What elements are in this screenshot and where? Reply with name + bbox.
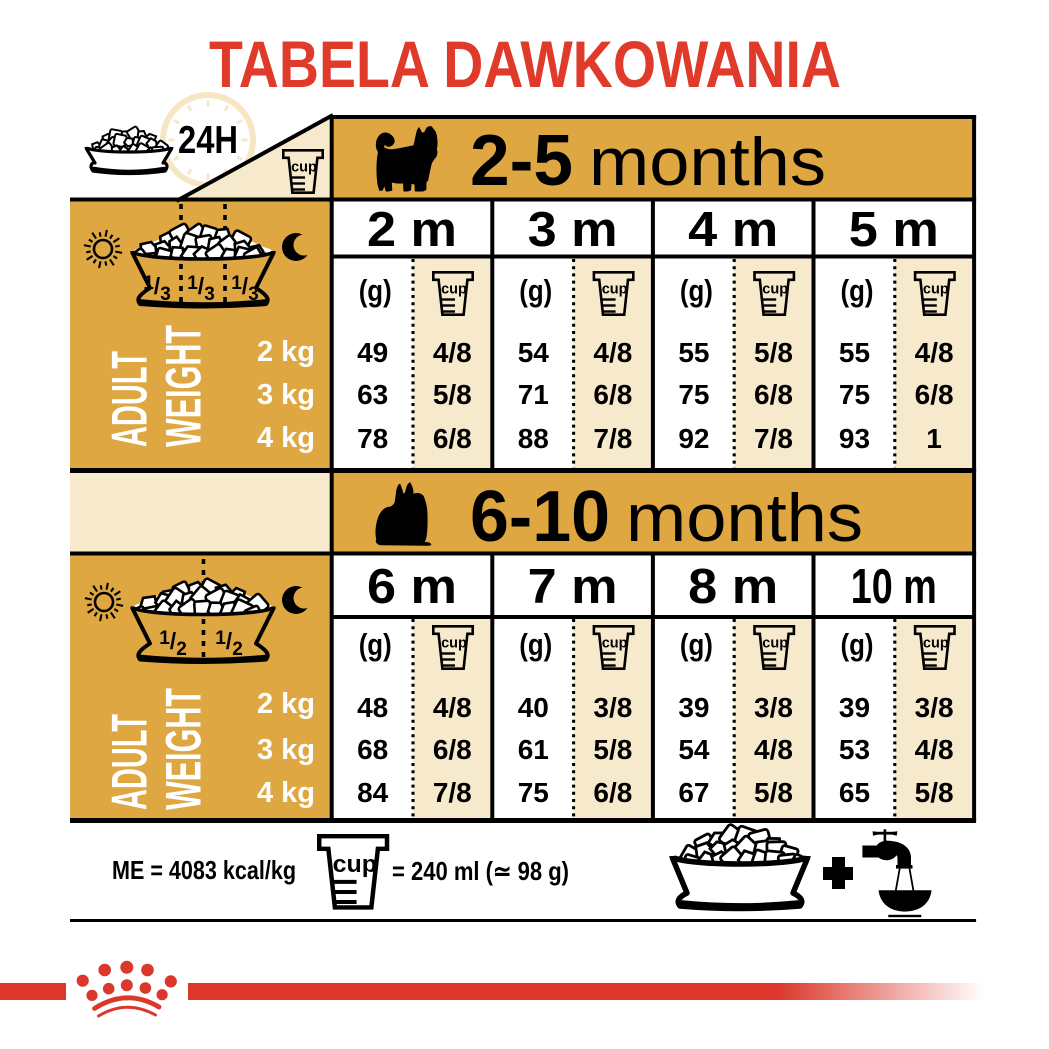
svg-text:75: 75 <box>839 379 870 410</box>
svg-text:55: 55 <box>678 337 709 368</box>
svg-text:6/8: 6/8 <box>754 379 793 410</box>
svg-text:ADULT: ADULT <box>102 714 158 810</box>
svg-text:54: 54 <box>678 734 710 765</box>
svg-text:92: 92 <box>678 423 709 454</box>
svg-text:48: 48 <box>357 692 388 723</box>
svg-text:39: 39 <box>678 692 709 723</box>
svg-text:2 kg: 2 kg <box>257 688 315 720</box>
svg-text:54: 54 <box>518 337 550 368</box>
svg-text:(g): (g) <box>519 627 552 662</box>
svg-text:1: 1 <box>926 423 942 454</box>
svg-text:(g): (g) <box>359 627 392 662</box>
svg-text:65: 65 <box>839 777 870 808</box>
svg-text:TABELA DAWKOWANIA: TABELA DAWKOWANIA <box>209 27 841 101</box>
svg-text:(g): (g) <box>680 627 713 662</box>
svg-text:WEIGHT: WEIGHT <box>156 688 212 810</box>
svg-text:6/8: 6/8 <box>593 777 632 808</box>
svg-text:3 m: 3 m <box>528 203 618 257</box>
svg-text:4 m: 4 m <box>688 203 778 257</box>
svg-text:75: 75 <box>678 379 709 410</box>
svg-text:4/8: 4/8 <box>915 337 954 368</box>
svg-text:75: 75 <box>518 777 549 808</box>
svg-text:(g): (g) <box>519 273 552 308</box>
svg-text:93: 93 <box>839 423 870 454</box>
svg-text:(g): (g) <box>841 627 874 662</box>
svg-text:5/8: 5/8 <box>754 777 793 808</box>
svg-text:3/8: 3/8 <box>754 692 793 723</box>
svg-text:8 m: 8 m <box>688 560 778 614</box>
svg-text:61: 61 <box>518 734 549 765</box>
svg-text:71: 71 <box>518 379 549 410</box>
svg-text:4/8: 4/8 <box>433 337 472 368</box>
svg-text:63: 63 <box>357 379 388 410</box>
svg-text:5/8: 5/8 <box>433 379 472 410</box>
svg-text:6/8: 6/8 <box>915 379 954 410</box>
svg-text:3/8: 3/8 <box>593 692 632 723</box>
svg-text:4 kg: 4 kg <box>257 422 315 454</box>
svg-text:2 kg: 2 kg <box>257 336 315 368</box>
svg-text:months: months <box>626 480 863 556</box>
svg-text:2-5: 2-5 <box>470 121 573 201</box>
svg-text:40: 40 <box>518 692 549 723</box>
svg-text:10 m: 10 m <box>851 560 937 614</box>
svg-text:4 kg: 4 kg <box>257 777 315 809</box>
svg-text:3 kg: 3 kg <box>257 379 315 411</box>
svg-text:6 m: 6 m <box>367 560 457 614</box>
svg-text:53: 53 <box>839 734 870 765</box>
svg-text:5/8: 5/8 <box>915 777 954 808</box>
svg-text:4/8: 4/8 <box>433 692 472 723</box>
svg-text:55: 55 <box>839 337 870 368</box>
svg-text:6/8: 6/8 <box>433 423 472 454</box>
svg-text:24H: 24H <box>178 119 238 162</box>
svg-text:ME = 4083 kcal/kg: ME = 4083 kcal/kg <box>112 855 296 885</box>
svg-text:84: 84 <box>357 777 389 808</box>
svg-text:6/8: 6/8 <box>593 379 632 410</box>
svg-text:4/8: 4/8 <box>754 734 793 765</box>
svg-text:5/8: 5/8 <box>754 337 793 368</box>
svg-text:ADULT: ADULT <box>102 351 158 447</box>
svg-text:= 240 ml (≃ 98 g): = 240 ml (≃ 98 g) <box>392 856 569 886</box>
svg-text:(g): (g) <box>841 273 874 308</box>
svg-text:5 m: 5 m <box>849 203 939 257</box>
svg-text:6-10: 6-10 <box>470 477 610 557</box>
svg-text:5/8: 5/8 <box>593 734 632 765</box>
svg-text:88: 88 <box>518 423 549 454</box>
svg-text:7/8: 7/8 <box>433 777 472 808</box>
svg-text:68: 68 <box>357 734 388 765</box>
svg-text:months: months <box>589 124 826 200</box>
svg-text:49: 49 <box>357 337 388 368</box>
svg-text:WEIGHT: WEIGHT <box>156 325 212 447</box>
svg-text:4/8: 4/8 <box>593 337 632 368</box>
svg-text:3 kg: 3 kg <box>257 734 315 766</box>
svg-text:7 m: 7 m <box>528 560 618 614</box>
svg-text:6/8: 6/8 <box>433 734 472 765</box>
svg-text:(g): (g) <box>359 273 392 308</box>
svg-text:2 m: 2 m <box>367 203 457 257</box>
svg-text:78: 78 <box>357 423 388 454</box>
svg-text:67: 67 <box>678 777 709 808</box>
svg-text:7/8: 7/8 <box>593 423 632 454</box>
svg-text:(g): (g) <box>680 273 713 308</box>
svg-text:4/8: 4/8 <box>915 734 954 765</box>
svg-text:39: 39 <box>839 692 870 723</box>
svg-text:3/8: 3/8 <box>915 692 954 723</box>
svg-text:7/8: 7/8 <box>754 423 793 454</box>
